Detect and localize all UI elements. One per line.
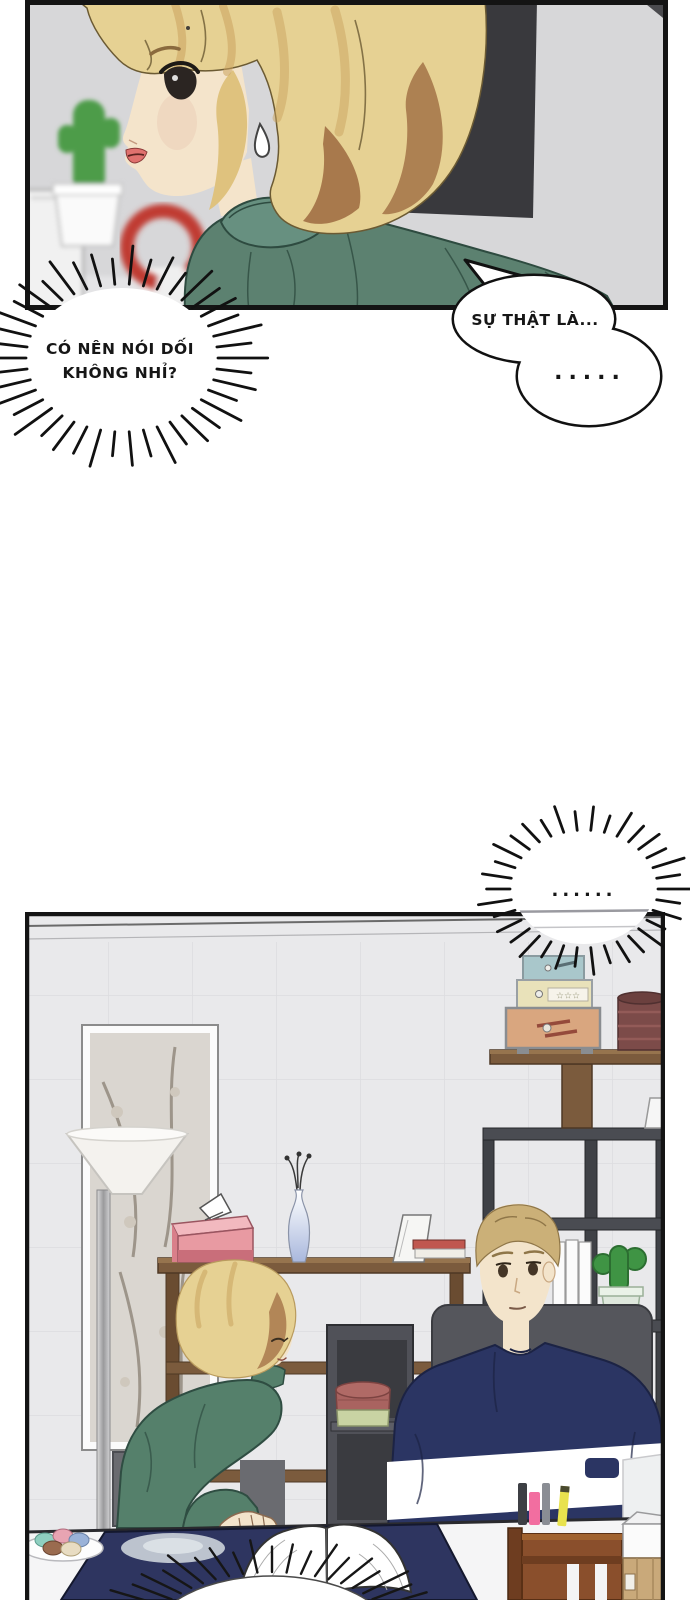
speech-right-line1: SỰ THẬT LÀ... (471, 309, 598, 329)
comic-page: ☆☆☆ (0, 0, 690, 1600)
panel-bottom: ☆☆☆ (25, 912, 665, 1600)
red-jar (336, 1382, 390, 1426)
burst-left-line1: CÓ NÊN NÓI DỐI (46, 337, 194, 358)
chest-patch (585, 1458, 619, 1478)
pen-gray (542, 1483, 550, 1525)
burst-top-text: ...... (551, 880, 616, 901)
storage-box-white (623, 1512, 665, 1558)
box-tan (506, 1008, 600, 1054)
storage-box-tan (623, 1558, 665, 1600)
man-ear (543, 1262, 555, 1282)
maroon-tin-stack (618, 992, 665, 1050)
burst-left-body (30, 288, 214, 428)
highlighter-pink (529, 1492, 540, 1525)
cheek-shadow (157, 94, 197, 150)
man-neck (503, 1320, 529, 1354)
thought-burst-top-right: ...... (482, 806, 690, 970)
speech-bubble-right: SỰ THẬT LÀ... ..... (438, 248, 680, 438)
thought-burst-left: CÓ NÊN NÓI DỐI KHÔNG NHỈ? (0, 252, 252, 464)
pen-black (518, 1483, 527, 1525)
box-stars-label: ☆☆☆ (556, 992, 580, 1002)
box-cream: ☆☆☆ (517, 980, 592, 1008)
speech-right-line2: ..... (554, 360, 626, 385)
mole (186, 26, 190, 30)
woman2-hair (176, 1260, 295, 1378)
burst-left-line2: KHÔNG NHỈ? (63, 361, 178, 382)
panel-bottom-art: ☆☆☆ (25, 912, 665, 1600)
